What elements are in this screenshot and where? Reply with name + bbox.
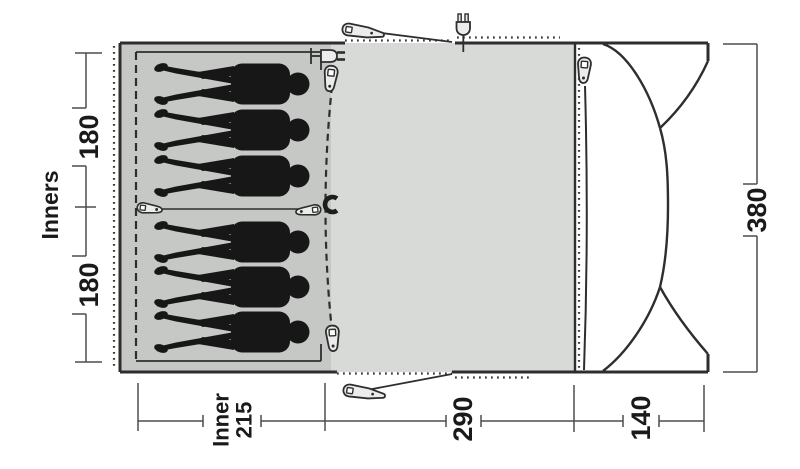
porch-curve-middle (660, 128, 668, 287)
porch-curve-bottom-right (660, 287, 708, 354)
guy-line-top (342, 23, 452, 42)
dim-label-inner-word: Inner (209, 393, 234, 447)
dim-label-290: 290 (448, 396, 478, 441)
dim-label-180-bottom: 180 (74, 262, 104, 307)
guy-line-bottom (343, 374, 452, 402)
dim-label-140: 140 (626, 395, 656, 440)
dim-label-380: 380 (742, 187, 772, 232)
front-door-zipper-line (584, 86, 587, 370)
tent-peg-icon (342, 23, 385, 41)
zipper-pull-icon (577, 57, 592, 83)
tent-peg-icon (343, 384, 386, 402)
porch-curve-bottom-left (603, 287, 660, 371)
guy-line (367, 374, 452, 390)
tent-floor-plan-svg: Inners 180 180 380 Inner 215 290 140 (0, 0, 800, 469)
dim-label-180-top: 180 (74, 114, 104, 159)
dim-label-inners: Inners (37, 170, 63, 239)
porch-curve-top-right (660, 61, 708, 128)
tent-floor-plan-figure: Inners 180 180 380 Inner 215 290 140 (0, 0, 800, 469)
porch-curve-top-left (603, 44, 660, 128)
porch-door-curves (584, 44, 708, 371)
dim-label-215: 215 (232, 402, 257, 439)
